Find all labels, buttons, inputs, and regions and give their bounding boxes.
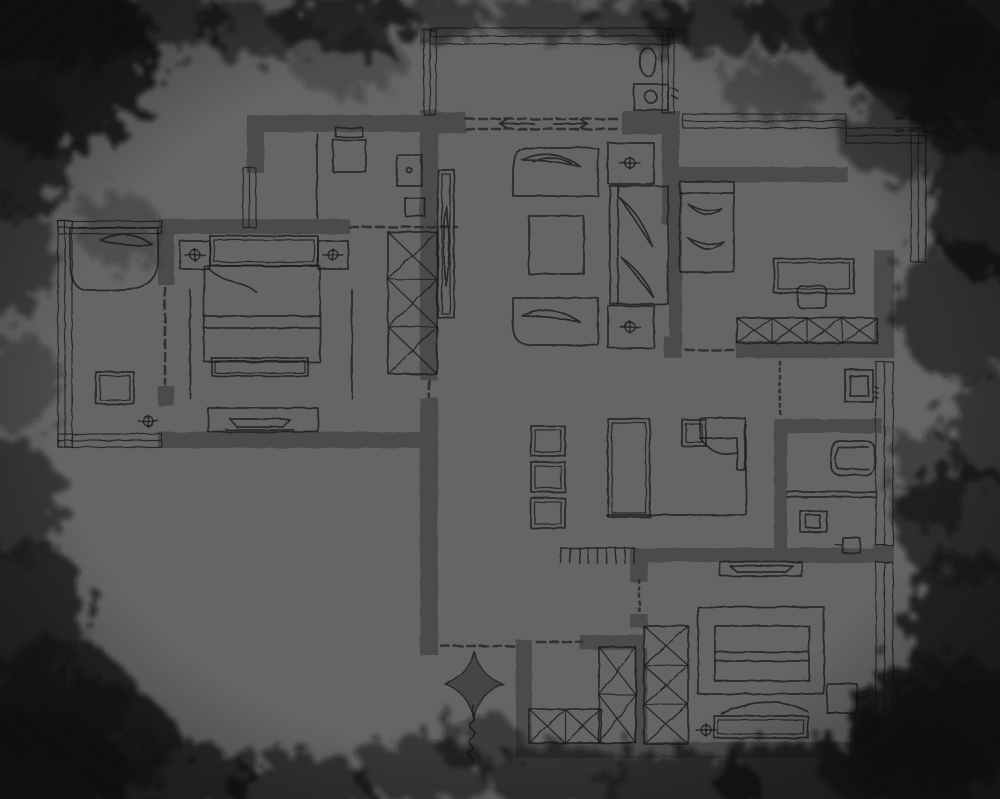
floor-plan-stage — [0, 0, 1000, 799]
film-grain — [0, 0, 1000, 799]
floor-plan — [0, 0, 1000, 799]
